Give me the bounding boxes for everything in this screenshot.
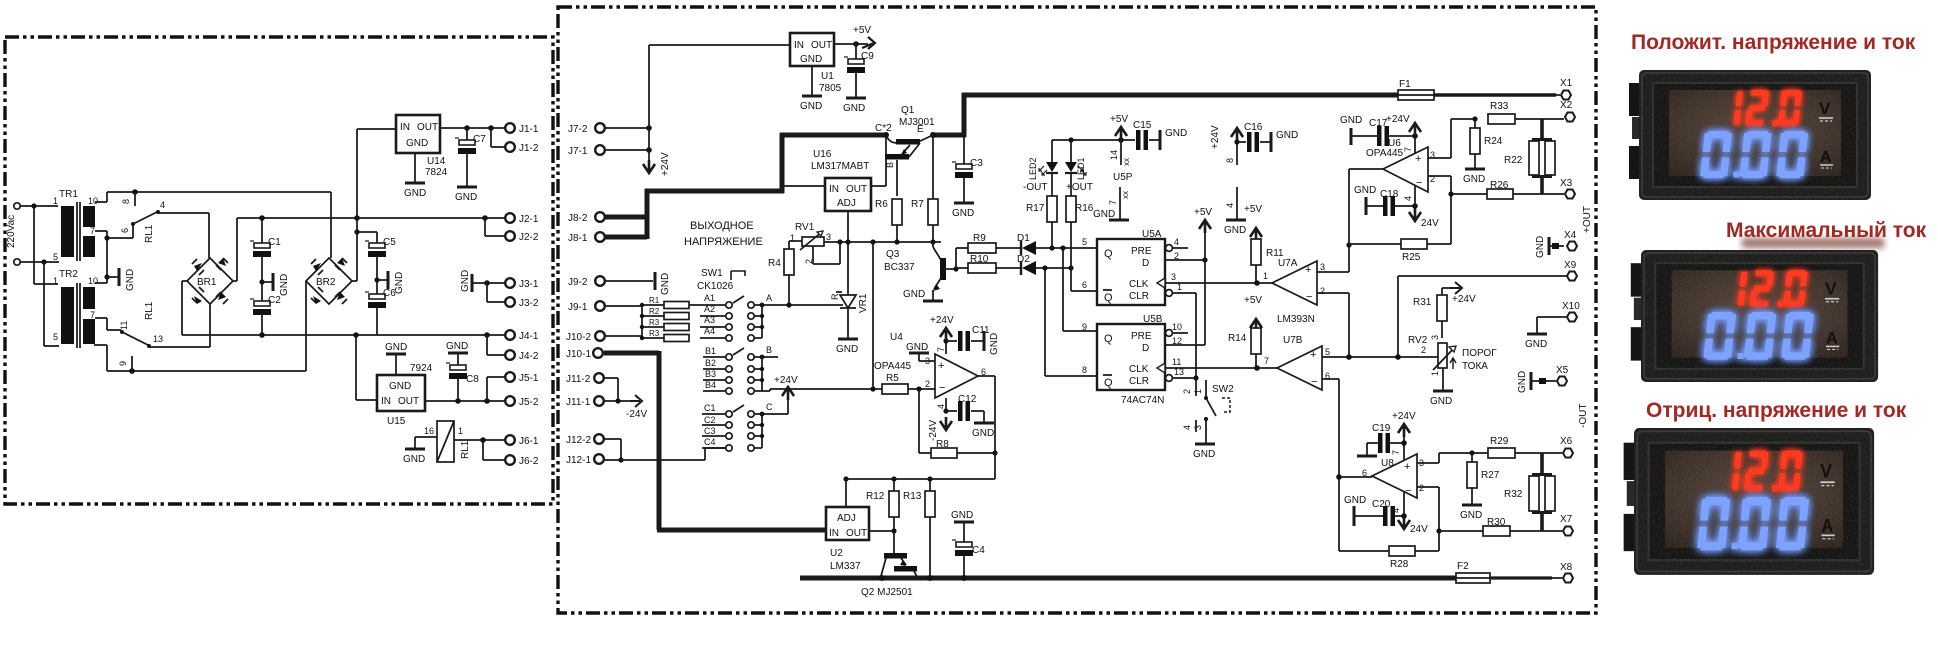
svg-text:B: B [885,162,895,168]
svg-text:НАПРЯЖЕНИЕ: НАПРЯЖЕНИЕ [684,236,763,248]
svg-text:OUT: OUT [398,396,419,407]
svg-text:1: 1 [1263,271,1268,281]
svg-text:B2: B2 [705,358,716,368]
svg-text:C4: C4 [704,437,716,447]
svg-text:7805: 7805 [819,83,842,94]
svg-text:R12: R12 [866,491,885,502]
svg-text:11: 11 [1172,357,1181,367]
svg-text:7: 7 [90,226,95,236]
svg-text:Q: Q [1104,248,1113,260]
svg-text:GND: GND [1354,185,1376,196]
svg-text:+24V: +24V [660,152,671,176]
svg-text:10: 10 [88,196,98,206]
svg-text:Q3: Q3 [886,249,900,260]
svg-text:GND: GND [446,341,468,352]
svg-text:J12-1: J12-1 [566,455,591,466]
svg-text:+: + [938,360,944,372]
svg-text:8: 8 [1082,365,1087,375]
svg-text:J4-2: J4-2 [519,351,539,362]
svg-text:R33: R33 [1490,101,1509,112]
svg-text:IN: IN [794,40,804,51]
svg-text:ADJ: ADJ [837,198,856,209]
svg-text:GND: GND [800,101,822,112]
svg-text:4: 4 [1403,196,1413,201]
svg-text:GND: GND [455,192,477,203]
svg-text:GND: GND [843,103,865,114]
svg-text:TR1: TR1 [59,189,78,200]
svg-text:+24V: +24V [1392,411,1416,422]
svg-text:J5-1: J5-1 [519,373,539,384]
svg-text:C19: C19 [1372,423,1391,434]
svg-text:SW1: SW1 [701,268,723,279]
svg-text:PRE: PRE [1131,331,1152,342]
svg-text:+5V: +5V [1244,204,1262,215]
svg-text:J6-1: J6-1 [519,436,539,447]
svg-text:GND: GND [1430,396,1452,407]
svg-text:R29: R29 [1490,436,1509,447]
svg-text:U7A: U7A [1278,258,1298,269]
svg-text:BR2: BR2 [316,277,336,288]
svg-text:CLR: CLR [1129,291,1149,302]
svg-text:xx: xx [1121,191,1130,199]
svg-text:U1: U1 [821,71,834,82]
svg-text:R25: R25 [1402,252,1421,263]
svg-text:J9-1: J9-1 [568,302,588,313]
svg-text:U7B: U7B [1283,335,1303,346]
svg-text:J8-2: J8-2 [568,213,588,224]
svg-text:2: 2 [1419,483,1424,493]
svg-text:+5V: +5V [1110,114,1128,125]
svg-text:3: 3 [1171,272,1176,282]
svg-text:2: 2 [1320,286,1325,296]
svg-text:BR1: BR1 [197,277,217,288]
svg-text:C15: C15 [1133,120,1152,131]
svg-text:7: 7 [1264,356,1269,366]
svg-text:3: 3 [1320,262,1325,272]
svg-text:GND: GND [951,510,973,521]
svg-text:6: 6 [120,228,130,233]
svg-text:+: + [1305,264,1311,276]
svg-text:OPA445: OPA445 [874,361,911,372]
svg-text:D2: D2 [1017,254,1030,265]
svg-text:GND: GND [406,138,428,149]
svg-text:VR1: VR1 [858,293,869,313]
svg-text:GND: GND [1165,128,1187,139]
svg-text:PRE: PRE [1131,246,1152,257]
svg-text:1: 1 [458,426,463,436]
svg-text:IN: IN [400,122,410,133]
svg-text:+: + [1404,461,1410,473]
svg-text:+OUT: +OUT [1582,206,1593,233]
svg-text:J3-2: J3-2 [519,298,539,309]
svg-text:-OUT: -OUT [1578,404,1589,428]
svg-text:R5: R5 [886,373,899,384]
svg-text:R1: R1 [649,296,660,305]
svg-text:B: B [766,345,772,355]
svg-text:X8: X8 [1560,562,1573,573]
svg-text:R24: R24 [1484,136,1503,147]
svg-text:X9: X9 [1564,260,1577,271]
svg-text:J1-1: J1-1 [519,124,539,135]
svg-text:C2: C2 [268,295,281,306]
svg-text:OUT: OUT [811,40,832,51]
svg-text:GND: GND [660,273,671,295]
svg-text:LM337: LM337 [830,561,861,572]
svg-text:GND: GND [1093,209,1115,220]
svg-text:C: C [766,402,773,412]
svg-text:J11-1: J11-1 [566,397,591,408]
svg-text:C11: C11 [972,325,990,336]
svg-text:X7: X7 [1560,514,1573,525]
svg-text:ТОКА: ТОКА [1462,361,1488,372]
svg-text:A4: A4 [704,326,715,336]
svg-text:+5V: +5V [1244,295,1262,306]
svg-text:OUT: OUT [846,184,867,195]
svg-text:C12: C12 [958,394,977,405]
svg-text:ВЫХОДНОЕ: ВЫХОДНОЕ [690,220,754,232]
svg-text:1: 1 [1177,282,1182,292]
svg-text:RV1: RV1 [795,222,815,233]
svg-text:R4: R4 [768,258,781,269]
svg-text:A1: A1 [704,293,715,303]
svg-text:R3: R3 [649,329,660,338]
svg-text:C6: C6 [383,288,396,299]
svg-text:R22: R22 [1504,155,1523,166]
svg-text:GND: GND [1535,236,1546,258]
svg-text:J6-2: J6-2 [519,456,539,467]
svg-text:14: 14 [1109,150,1119,160]
svg-text:1: 1 [1193,389,1203,394]
svg-text:Q2 MJ2501: Q2 MJ2501 [861,587,913,598]
svg-text:4: 4 [1225,203,1235,208]
svg-text:U2: U2 [830,548,843,559]
svg-text:−: − [1306,291,1312,303]
svg-text:IN: IN [381,396,391,407]
svg-text:J9-2: J9-2 [568,277,588,288]
svg-text:1: 1 [53,196,58,206]
svg-text:24V: 24V [1410,524,1428,535]
svg-text:GND: GND [1525,339,1547,350]
svg-text:B3: B3 [705,369,716,379]
svg-text:GND: GND [1224,225,1246,236]
svg-text:C2: C2 [704,415,716,425]
svg-text:F1: F1 [1399,79,1411,90]
svg-text:J1-2: J1-2 [519,143,539,154]
svg-text:R14: R14 [1228,333,1247,344]
svg-text:C3: C3 [704,426,716,436]
svg-text:CLK: CLK [1129,279,1149,290]
svg-text:GND: GND [836,344,858,355]
svg-text:Q: Q [1104,333,1113,345]
svg-text:OUT: OUT [846,528,867,539]
svg-text:9: 9 [118,361,128,366]
svg-text:R16: R16 [1075,203,1094,214]
svg-text:−: − [939,382,945,394]
svg-text:U5P: U5P [1113,172,1133,183]
svg-text:13: 13 [1174,367,1184,377]
svg-text:5: 5 [1082,237,1087,247]
svg-text:−: − [1311,376,1317,388]
svg-text:+5V: +5V [1194,207,1212,218]
svg-text:GND: GND [903,289,925,300]
svg-text:3: 3 [1193,425,1203,430]
svg-text:U14: U14 [427,156,446,167]
svg-text:J11-2: J11-2 [566,374,591,385]
svg-text:A3: A3 [704,315,715,325]
svg-text:+24V: +24V [930,315,954,326]
svg-text:GND: GND [952,208,974,219]
svg-text:5: 5 [1325,347,1330,357]
svg-text:C7: C7 [473,134,486,145]
svg-text:C20: C20 [1372,499,1391,510]
svg-text:1: 1 [1430,371,1440,376]
svg-text:J7-1: J7-1 [568,146,588,157]
svg-text:TR2: TR2 [59,269,78,280]
svg-text:U16: U16 [813,149,832,160]
svg-text:3: 3 [1430,335,1440,340]
svg-text:Отриц. напряжение и ток: Отриц. напряжение и ток [1646,399,1907,422]
svg-text:6: 6 [1082,280,1087,290]
svg-text:+24V: +24V [774,375,798,386]
svg-text:GND: GND [385,342,407,353]
svg-text:RL1: RL1 [144,301,155,320]
svg-text:7: 7 [90,310,95,320]
svg-text:IN: IN [829,184,839,195]
svg-text:X3: X3 [1560,178,1573,189]
svg-text:OPA445: OPA445 [1366,148,1403,159]
svg-text:LM393N: LM393N [1277,314,1315,325]
svg-text:C16: C16 [1244,122,1263,133]
svg-text:7: 7 [1403,147,1413,152]
svg-text:GND: GND [989,333,1000,355]
svg-text:C5: C5 [383,237,396,248]
svg-text:GND: GND [279,274,290,296]
svg-text:−: − [1405,485,1411,497]
svg-text:+24V: +24V [1210,125,1221,149]
svg-text:GND: GND [1344,495,1366,506]
svg-text:OUT: OUT [417,122,438,133]
svg-text:R32: R32 [1504,489,1523,500]
svg-text:Q: Q [1104,292,1113,304]
svg-text:2: 2 [1182,389,1192,394]
svg-text:10: 10 [88,276,98,286]
svg-text:D1: D1 [1017,233,1030,244]
svg-text:R28: R28 [1390,559,1409,570]
svg-text:J12-2: J12-2 [566,435,591,446]
svg-text:4: 4 [1174,237,1179,247]
svg-text:13: 13 [153,334,163,344]
svg-text:ПОРОГ: ПОРОГ [1462,348,1497,359]
svg-text:10: 10 [1172,322,1182,332]
svg-text:+5V: +5V [853,25,871,36]
svg-text:GND: GND [1463,174,1485,185]
svg-text:4: 4 [936,404,946,409]
svg-text:7924: 7924 [410,363,433,374]
svg-text:4: 4 [1182,425,1192,430]
svg-text:C3: C3 [970,158,983,169]
svg-text:D: D [1142,343,1149,354]
svg-text:-24V: -24V [626,409,647,420]
svg-text:Q: Q [1104,377,1113,389]
svg-text:GND: GND [1276,130,1298,141]
svg-text:X2: X2 [1560,100,1573,111]
svg-text:J8-1: J8-1 [568,233,588,244]
svg-text:C1: C1 [704,403,716,413]
svg-text:GND: GND [404,188,426,199]
svg-text:+OUT: +OUT [1066,182,1093,193]
svg-text:CK1026: CK1026 [697,281,734,292]
svg-text:R7: R7 [911,199,924,210]
svg-text:GND: GND [1340,115,1362,126]
svg-text:J5-2: J5-2 [519,397,539,408]
svg-text:X4: X4 [1564,230,1577,241]
svg-text:7824: 7824 [425,167,448,178]
svg-text:X10: X10 [1562,301,1580,312]
svg-text:Положит. напряжение и ток: Положит. напряжение и ток [1631,31,1916,54]
svg-text:7: 7 [1391,450,1401,455]
svg-text:LM317MABT: LM317MABT [811,161,869,172]
svg-text:IN: IN [829,528,839,539]
svg-text:C9: C9 [861,51,874,62]
svg-text:24V: 24V [1421,218,1439,229]
svg-text:J2-2: J2-2 [519,232,539,243]
svg-text:J3-1: J3-1 [519,279,539,290]
svg-text:B1: B1 [705,346,716,356]
svg-text:R27: R27 [1481,470,1500,481]
svg-text:SW2: SW2 [1212,384,1234,395]
svg-text:C1: C1 [268,237,281,248]
svg-text:U15: U15 [387,416,406,427]
svg-text:D: D [1142,258,1149,269]
svg-text:J2-1: J2-1 [519,214,539,225]
svg-text:CLK: CLK [1129,364,1149,375]
svg-text:J10-2: J10-2 [566,332,591,343]
svg-text:−: − [1416,177,1422,189]
svg-text:A: A [766,293,772,303]
svg-text:R17: R17 [1026,203,1045,214]
svg-text:GND: GND [403,454,425,465]
svg-text:xx: xx [1122,158,1131,166]
svg-text:F2: F2 [1457,561,1469,572]
svg-text:R6: R6 [875,199,888,210]
svg-text:BC337: BC337 [884,262,915,273]
svg-text:+24V: +24V [1386,114,1410,125]
svg-text:GND: GND [972,428,994,439]
svg-text:GND: GND [125,269,136,291]
svg-text:1: 1 [53,276,58,286]
svg-text:2: 2 [1421,345,1426,355]
svg-text:GND: GND [800,54,822,65]
svg-text:+: + [1310,349,1316,361]
svg-text:J4-1: J4-1 [519,331,539,342]
svg-text:X6: X6 [1560,436,1573,447]
svg-text:A2: A2 [704,304,715,314]
svg-text:8: 8 [121,199,131,204]
svg-text:GND: GND [1460,510,1482,521]
svg-text:J10-1: J10-1 [566,349,591,360]
svg-text:2: 2 [925,379,930,389]
svg-text:GND: GND [460,270,471,292]
svg-text:E: E [917,124,924,135]
svg-text:GND: GND [1193,449,1215,460]
svg-text:GND: GND [1517,371,1528,393]
svg-text:J7-2: J7-2 [568,124,588,135]
svg-text:B4: B4 [705,380,716,390]
svg-text:R31: R31 [1413,297,1432,308]
svg-text:9: 9 [1082,322,1087,332]
svg-text:C*2: C*2 [875,123,892,134]
svg-text:R2: R2 [649,307,660,316]
svg-text:5: 5 [53,332,58,342]
svg-text:GND: GND [389,381,411,392]
svg-text:220Vac: 220Vac [6,215,17,248]
svg-text:+: + [1415,153,1421,165]
svg-text:RL1: RL1 [460,440,471,459]
svg-text:R: R [830,293,840,300]
svg-text:LED2: LED2 [1028,157,1038,180]
svg-text:C17: C17 [1369,118,1388,129]
svg-text:7: 7 [936,347,946,352]
svg-text:4: 4 [1391,508,1401,513]
svg-text:7: 7 [1108,200,1118,205]
svg-text:-24V: -24V [928,420,939,441]
svg-text:+24V: +24V [1452,294,1476,305]
svg-text:R13: R13 [903,491,922,502]
svg-text:C18: C18 [1380,189,1399,200]
svg-text:X1: X1 [1560,78,1573,89]
svg-text:Q1: Q1 [901,105,915,116]
svg-text:3: 3 [826,232,831,242]
svg-text:16: 16 [424,426,434,436]
svg-text:11: 11 [119,321,129,330]
svg-text:-OUT: -OUT [1023,182,1047,193]
svg-text:X5: X5 [1556,365,1569,376]
svg-text:RL1: RL1 [144,224,155,243]
svg-text:74AC74N: 74AC74N [1121,395,1164,406]
svg-text:CLR: CLR [1129,376,1149,387]
svg-text:ADJ: ADJ [837,513,856,524]
svg-text:R3: R3 [649,318,660,327]
svg-text:4: 4 [160,200,165,210]
svg-text:C8: C8 [466,374,479,385]
svg-text:8: 8 [1225,158,1235,163]
svg-text:GND: GND [906,342,928,353]
svg-text:Максимальный ток: Максимальный ток [1726,219,1927,242]
svg-text:U4: U4 [890,332,903,343]
svg-text:5: 5 [53,252,58,262]
svg-text:C4: C4 [972,545,985,556]
